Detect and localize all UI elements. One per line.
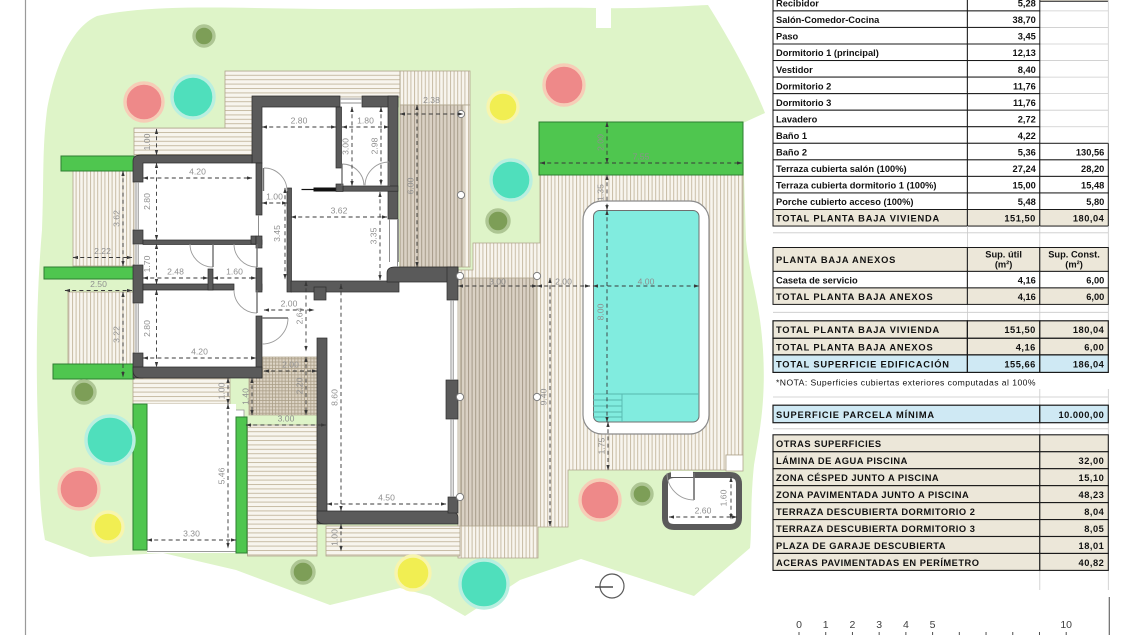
svg-text:2.22: 2.22 xyxy=(94,246,111,256)
svg-text:1.60: 1.60 xyxy=(719,489,729,506)
svg-text:151,50: 151,50 xyxy=(1004,325,1035,335)
svg-text:130,56: 130,56 xyxy=(1076,148,1104,158)
svg-text:5,48: 5,48 xyxy=(1018,197,1036,207)
svg-text:2: 2 xyxy=(850,619,856,631)
svg-text:2.64: 2.64 xyxy=(295,307,305,324)
svg-text:32,00: 32,00 xyxy=(1079,456,1105,466)
svg-text:8.00: 8.00 xyxy=(596,303,606,320)
svg-text:155,66: 155,66 xyxy=(1004,359,1035,369)
svg-text:2.80: 2.80 xyxy=(142,193,152,210)
svg-text:4,16: 4,16 xyxy=(1018,292,1036,302)
svg-text:Baño 1: Baño 1 xyxy=(776,131,807,141)
svg-text:6.00: 6.00 xyxy=(406,177,416,194)
svg-text:11,76: 11,76 xyxy=(1013,81,1036,91)
svg-text:TOTAL PLANTA BAJA VIVIENDA: TOTAL PLANTA BAJA VIVIENDA xyxy=(776,214,940,224)
svg-text:ACERAS PAVIMENTADAS EN PERÍMET: ACERAS PAVIMENTADAS EN PERÍMETRO xyxy=(776,558,980,568)
svg-text:3.00: 3.00 xyxy=(489,277,506,287)
svg-text:Caseta de servicio: Caseta de servicio xyxy=(776,275,858,285)
svg-text:8,04: 8,04 xyxy=(1084,507,1104,517)
svg-text:Dormitorio 3: Dormitorio 3 xyxy=(776,98,831,108)
svg-text:Porche cubierto acceso (100%): Porche cubierto acceso (100%) xyxy=(776,197,913,207)
svg-text:28,20: 28,20 xyxy=(1081,164,1104,174)
svg-text:Vestidor: Vestidor xyxy=(776,65,813,75)
svg-text:Dormitorio 1 (principal): Dormitorio 1 (principal) xyxy=(776,48,879,58)
svg-text:3.45: 3.45 xyxy=(272,225,282,242)
svg-text:ZONA CÉSPED JUNTO A PISCINA: ZONA CÉSPED JUNTO A PISCINA xyxy=(776,473,939,483)
svg-text:OTRAS SUPERFICIES: OTRAS SUPERFICIES xyxy=(776,439,882,449)
svg-text:11,76: 11,76 xyxy=(1013,98,1036,108)
svg-text:TOTAL PLANTA BAJA ANEXOS: TOTAL PLANTA BAJA ANEXOS xyxy=(776,292,933,302)
svg-text:3: 3 xyxy=(876,619,882,631)
svg-text:186,04: 186,04 xyxy=(1073,359,1105,369)
svg-text:2.50: 2.50 xyxy=(90,279,107,289)
svg-text:Paso: Paso xyxy=(776,32,799,42)
svg-text:2.20: 2.20 xyxy=(295,377,305,394)
svg-text:38,70: 38,70 xyxy=(1013,15,1036,25)
svg-text:2.00: 2.00 xyxy=(596,134,606,151)
svg-text:40,82: 40,82 xyxy=(1079,558,1105,568)
svg-text:PLAZA DE GARAJE DESCUBIERTA: PLAZA DE GARAJE DESCUBIERTA xyxy=(776,541,946,551)
svg-text:8,05: 8,05 xyxy=(1084,524,1104,534)
svg-text:TOTAL SUPERFICIE EDIFICACIÓN: TOTAL SUPERFICIE EDIFICACIÓN xyxy=(776,358,950,369)
svg-text:5: 5 xyxy=(930,619,936,631)
svg-text:4.50: 4.50 xyxy=(378,493,395,503)
svg-text:Lavadero: Lavadero xyxy=(776,114,818,124)
svg-text:3.22: 3.22 xyxy=(112,326,122,343)
svg-text:12,13: 12,13 xyxy=(1013,48,1036,58)
svg-text:Salón-Comedor-Cocina: Salón-Comedor-Cocina xyxy=(776,15,880,25)
svg-text:7.55: 7.55 xyxy=(633,152,650,162)
svg-text:5,80: 5,80 xyxy=(1086,197,1104,207)
svg-text:3.00: 3.00 xyxy=(278,414,295,424)
svg-text:TOTAL PLANTA BAJA ANEXOS: TOTAL PLANTA BAJA ANEXOS xyxy=(776,343,933,353)
svg-text:PLANTA BAJA ANEXOS: PLANTA BAJA ANEXOS xyxy=(776,255,896,265)
svg-text:5,28: 5,28 xyxy=(1018,0,1036,9)
svg-text:TOTAL PLANTA BAJA VIVIENDA: TOTAL PLANTA BAJA VIVIENDA xyxy=(776,325,940,335)
svg-text:ZONA PAVIMENTADA JUNTO A PISCI: ZONA PAVIMENTADA JUNTO A PISCINA xyxy=(776,490,969,500)
svg-text:4.00: 4.00 xyxy=(638,277,655,287)
svg-text:1.75: 1.75 xyxy=(597,437,607,454)
svg-text:5.46: 5.46 xyxy=(217,467,227,484)
svg-text:4.20: 4.20 xyxy=(191,347,208,357)
svg-text:8,40: 8,40 xyxy=(1018,65,1036,75)
svg-text:15,48: 15,48 xyxy=(1081,181,1104,191)
svg-text:3,45: 3,45 xyxy=(1018,32,1036,42)
svg-text:1.00: 1.00 xyxy=(266,192,283,202)
svg-text:10: 10 xyxy=(1060,619,1072,631)
svg-text:2.48: 2.48 xyxy=(167,267,184,277)
svg-text:180,04: 180,04 xyxy=(1073,325,1105,335)
svg-text:15,10: 15,10 xyxy=(1079,473,1105,483)
svg-text:151,50: 151,50 xyxy=(1004,214,1035,224)
svg-text:TERRAZA DESCUBIERTA DORMITORIO: TERRAZA DESCUBIERTA DORMITORIO 3 xyxy=(776,524,975,534)
svg-text:48,23: 48,23 xyxy=(1079,490,1105,500)
svg-text:TERRAZA DESCUBIERTA DORMITORIO: TERRAZA DESCUBIERTA DORMITORIO 2 xyxy=(776,507,975,517)
svg-text:Dormitorio 2: Dormitorio 2 xyxy=(776,81,831,91)
svg-text:4: 4 xyxy=(903,619,909,631)
svg-text:4,22: 4,22 xyxy=(1018,131,1036,141)
svg-text:(m²): (m²) xyxy=(995,260,1013,270)
svg-text:3.30: 3.30 xyxy=(183,529,200,539)
svg-text:1.70: 1.70 xyxy=(142,255,152,272)
svg-text:1.00: 1.00 xyxy=(217,382,227,399)
svg-text:1.00: 1.00 xyxy=(142,133,152,150)
svg-text:(m²): (m²) xyxy=(1065,260,1083,270)
svg-text:2.80: 2.80 xyxy=(291,116,308,126)
svg-text:1.00: 1.00 xyxy=(330,529,340,546)
svg-text:6,00: 6,00 xyxy=(1086,275,1104,285)
svg-text:LÁMINA DE AGUA PISCINA: LÁMINA DE AGUA PISCINA xyxy=(776,456,908,466)
svg-text:5,36: 5,36 xyxy=(1018,148,1036,158)
svg-text:2.98: 2.98 xyxy=(370,137,380,154)
svg-text:1: 1 xyxy=(823,619,829,631)
svg-text:8.60: 8.60 xyxy=(330,389,340,406)
svg-text:2.00: 2.00 xyxy=(281,299,298,309)
svg-text:18,01: 18,01 xyxy=(1079,541,1105,551)
svg-text:Recibidor: Recibidor xyxy=(776,0,819,9)
svg-text:Baño 2: Baño 2 xyxy=(776,148,807,158)
svg-text:4.20: 4.20 xyxy=(189,167,206,177)
svg-text:Terraza cubierta dormitorio 1: Terraza cubierta dormitorio 1 (100%) xyxy=(776,181,937,191)
svg-text:15,00: 15,00 xyxy=(1013,181,1036,191)
svg-text:1.35: 1.35 xyxy=(596,184,606,201)
svg-text:6,00: 6,00 xyxy=(1086,292,1104,302)
svg-text:3.62: 3.62 xyxy=(331,206,348,216)
svg-text:4,16: 4,16 xyxy=(1016,343,1036,353)
svg-text:Sup. Const.: Sup. Const. xyxy=(1048,250,1100,260)
svg-text:1.60: 1.60 xyxy=(226,267,243,277)
svg-text:SUPERFICIE PARCELA MÍNIMA: SUPERFICIE PARCELA MÍNIMA xyxy=(776,410,935,420)
svg-text:4,16: 4,16 xyxy=(1018,275,1036,285)
svg-text:Sup. útil: Sup. útil xyxy=(985,250,1022,260)
svg-text:9.40: 9.40 xyxy=(539,388,549,405)
svg-text:3.35: 3.35 xyxy=(369,227,379,244)
svg-text:180,04: 180,04 xyxy=(1073,214,1105,224)
svg-text:27,24: 27,24 xyxy=(1013,164,1037,174)
svg-text:2.38: 2.38 xyxy=(423,95,440,105)
svg-text:3.62: 3.62 xyxy=(112,210,122,227)
svg-text:3.00: 3.00 xyxy=(341,138,351,155)
svg-text:1.80: 1.80 xyxy=(357,116,374,126)
svg-text:2.60: 2.60 xyxy=(695,506,712,516)
svg-text:6,00: 6,00 xyxy=(1084,343,1104,353)
svg-text:Terraza cubierta salón (100%): Terraza cubierta salón (100%) xyxy=(776,164,907,174)
svg-text:2,72: 2,72 xyxy=(1018,114,1036,124)
svg-text:*NOTA: Superficies cubiertas e: *NOTA: Superficies cubiertas exteriores … xyxy=(776,378,1036,388)
svg-text:0: 0 xyxy=(796,619,802,631)
svg-text:1.40: 1.40 xyxy=(241,388,251,405)
svg-text:2.00: 2.00 xyxy=(282,360,299,370)
svg-text:2.00: 2.00 xyxy=(555,277,572,287)
svg-text:2.80: 2.80 xyxy=(142,320,152,337)
svg-text:10.000,00: 10.000,00 xyxy=(1058,410,1104,420)
